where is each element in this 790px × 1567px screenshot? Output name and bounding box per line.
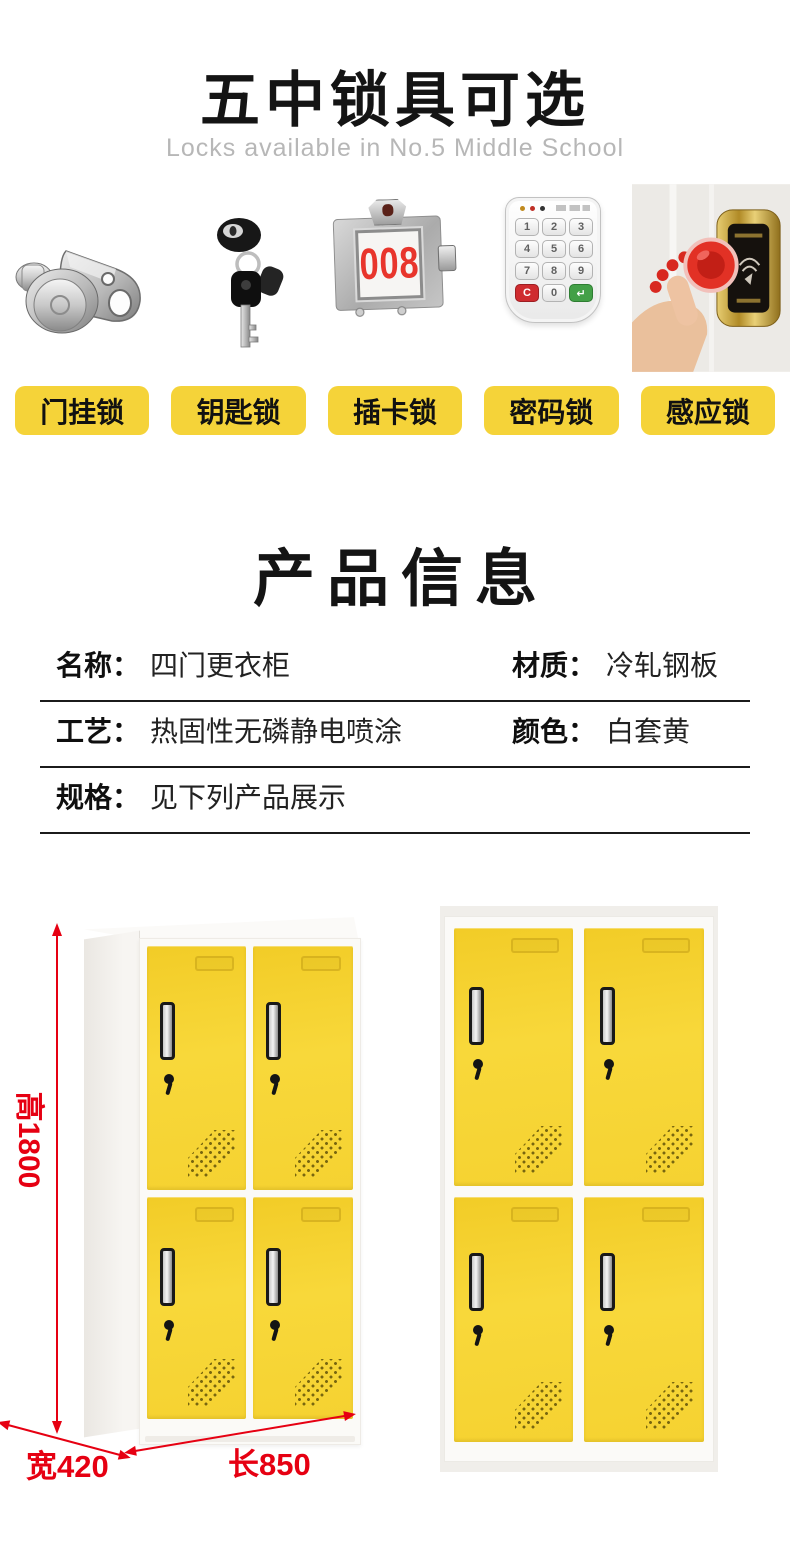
locker-door <box>584 1197 704 1442</box>
keypad-key-8: 8 <box>542 262 566 280</box>
info-row-1: 名称： 四门更衣柜 材质： 冷轧钢板 <box>40 636 750 702</box>
door-vents <box>188 1359 236 1407</box>
door-handle <box>600 987 615 1045</box>
door-keyhole <box>473 1325 483 1335</box>
info-cell-process: 工艺： 热固性无磷静电喷涂 <box>56 714 512 750</box>
card-lock-photo: 008 <box>316 183 474 379</box>
keypad-key-2: 2 <box>542 218 566 236</box>
info-cell-material: 材质： 冷轧钢板 <box>512 648 718 684</box>
info-label: 规格： <box>56 780 140 816</box>
indicator-amber <box>520 206 525 211</box>
door-vents <box>188 1130 236 1178</box>
keypad-indicator-lights <box>520 206 545 211</box>
product-info-title: 产品信息 <box>0 528 790 618</box>
page-title: 五中锁具可选 <box>0 52 790 139</box>
door-keyhole <box>604 1059 614 1069</box>
lock-labels-row: 门挂锁 钥匙锁 插卡锁 密码锁 感应锁 <box>15 386 775 435</box>
card-lock-number-plate: 008 <box>355 228 423 300</box>
locker-door <box>454 928 573 1186</box>
product-info-table: 名称： 四门更衣柜 材质： 冷轧钢板 工艺： 热固性无磷静电喷涂 颜色： 白套黄… <box>40 636 750 834</box>
door-handle <box>160 1002 175 1060</box>
door-keyhole <box>164 1320 174 1330</box>
width-dimension-label: 宽420 <box>26 1441 109 1486</box>
info-value: 冷轧钢板 <box>606 648 718 684</box>
keypad-lock-photo: 1 2 3 4 5 6 7 8 9 C 0 ↵ <box>474 183 632 379</box>
door-vents <box>295 1359 343 1407</box>
card-lock-icon: 008 <box>332 197 458 317</box>
key-lock-icon <box>181 209 293 359</box>
rfid-lock-photo <box>632 183 790 379</box>
page-subtitle: Locks available in No.5 Middle School <box>0 134 790 163</box>
locker-door <box>454 1197 573 1442</box>
door-handle <box>160 1248 175 1306</box>
keypad-key-enter: ↵ <box>569 284 593 302</box>
locker-door <box>147 946 246 1190</box>
name-card-slot <box>642 1207 690 1222</box>
door-keyhole <box>270 1320 280 1330</box>
card-lock-clasp-hole <box>382 204 393 216</box>
locker-doors <box>147 946 353 1419</box>
name-card-slot <box>195 1207 235 1222</box>
locker-perspective-view: 高1800 宽420 长850 <box>0 888 400 1528</box>
locker-doors <box>454 928 704 1444</box>
keypad-key-3: 3 <box>569 218 593 236</box>
door-handle <box>266 1248 281 1306</box>
rfid-lock-icon <box>632 183 790 373</box>
name-card-slot <box>511 938 559 953</box>
lock-label-keypad: 密码锁 <box>484 386 618 435</box>
locker-frame <box>444 916 714 1462</box>
card-lock-number: 008 <box>359 238 420 290</box>
info-value: 白套黄 <box>606 714 690 750</box>
keypad-keys: 1 2 3 4 5 6 7 8 9 C 0 ↵ <box>515 218 593 302</box>
door-keyhole <box>164 1074 174 1084</box>
info-value: 四门更衣柜 <box>150 648 290 684</box>
indicator-dark <box>540 206 545 211</box>
name-card-slot <box>511 1207 559 1222</box>
lock-label-card: 插卡锁 <box>328 386 462 435</box>
door-handle <box>600 1253 615 1311</box>
door-handle <box>469 987 484 1045</box>
name-card-slot <box>301 1207 341 1222</box>
info-row-2: 工艺： 热固性无磷静电喷涂 颜色： 白套黄 <box>40 702 750 768</box>
name-card-slot <box>195 956 235 971</box>
door-keyhole <box>270 1074 280 1084</box>
card-lock-screws <box>352 305 412 317</box>
door-vents <box>646 1382 694 1430</box>
locker-door <box>253 946 353 1190</box>
locker-door <box>253 1197 353 1419</box>
door-keyhole <box>473 1059 483 1069</box>
door-handle <box>266 1002 281 1060</box>
info-cell-name: 名称： 四门更衣柜 <box>56 648 512 684</box>
locker-door <box>147 1197 246 1419</box>
info-value: 见下列产品展示 <box>150 780 346 816</box>
info-label: 颜色： <box>512 714 596 750</box>
hasp-lock-icon <box>4 225 154 360</box>
keypad-key-7: 7 <box>515 262 539 280</box>
door-vents <box>295 1130 343 1178</box>
card-lock-latch <box>438 245 457 272</box>
keypad-key-1: 1 <box>515 218 539 236</box>
name-card-slot <box>642 938 690 953</box>
locker-side-face <box>84 931 140 1438</box>
keypad-lock-icon: 1 2 3 4 5 6 7 8 9 C 0 ↵ <box>505 197 601 323</box>
info-value: 热固性无磷静电喷涂 <box>150 714 402 750</box>
height-dimension-arrow <box>56 935 58 1422</box>
name-card-slot <box>301 956 341 971</box>
locker-front-view <box>440 906 718 1472</box>
key-lock-photo <box>158 183 316 379</box>
keypad-key-9: 9 <box>569 262 593 280</box>
info-label: 名称： <box>56 648 140 684</box>
indicator-red <box>530 206 535 211</box>
door-keyhole <box>604 1325 614 1335</box>
locker-front-face <box>139 938 361 1445</box>
keypad-fine-print <box>556 205 590 211</box>
lock-label-key: 钥匙锁 <box>171 386 305 435</box>
locker-showcase: 高1800 宽420 长850 <box>0 888 790 1528</box>
info-cell-color: 颜色： 白套黄 <box>512 714 690 750</box>
length-dimension-label: 长850 <box>228 1439 311 1484</box>
lock-photos-row: 008 1 2 3 4 5 6 <box>0 183 790 379</box>
locker-door <box>584 928 704 1186</box>
door-handle <box>469 1253 484 1311</box>
info-label: 工艺： <box>56 714 140 750</box>
keypad-key-clear: C <box>515 284 539 302</box>
door-vents <box>515 1126 563 1174</box>
keypad-key-0: 0 <box>542 284 566 302</box>
door-vents <box>646 1126 694 1174</box>
keypad-key-4: 4 <box>515 240 539 258</box>
info-label: 材质： <box>512 648 596 684</box>
hasp-lock-photo <box>0 183 158 379</box>
info-row-3: 规格： 见下列产品展示 <box>40 768 750 834</box>
info-cell-spec: 规格： 见下列产品展示 <box>56 780 512 816</box>
door-vents <box>515 1382 563 1430</box>
height-dimension-label: 高1800 <box>22 1075 54 1205</box>
lock-label-rfid: 感应锁 <box>641 386 775 435</box>
product-detail-page: 五中锁具可选 Locks available in No.5 Middle Sc… <box>0 0 790 1567</box>
keypad-key-6: 6 <box>569 240 593 258</box>
lock-label-hasp: 门挂锁 <box>15 386 149 435</box>
keypad-key-5: 5 <box>542 240 566 258</box>
